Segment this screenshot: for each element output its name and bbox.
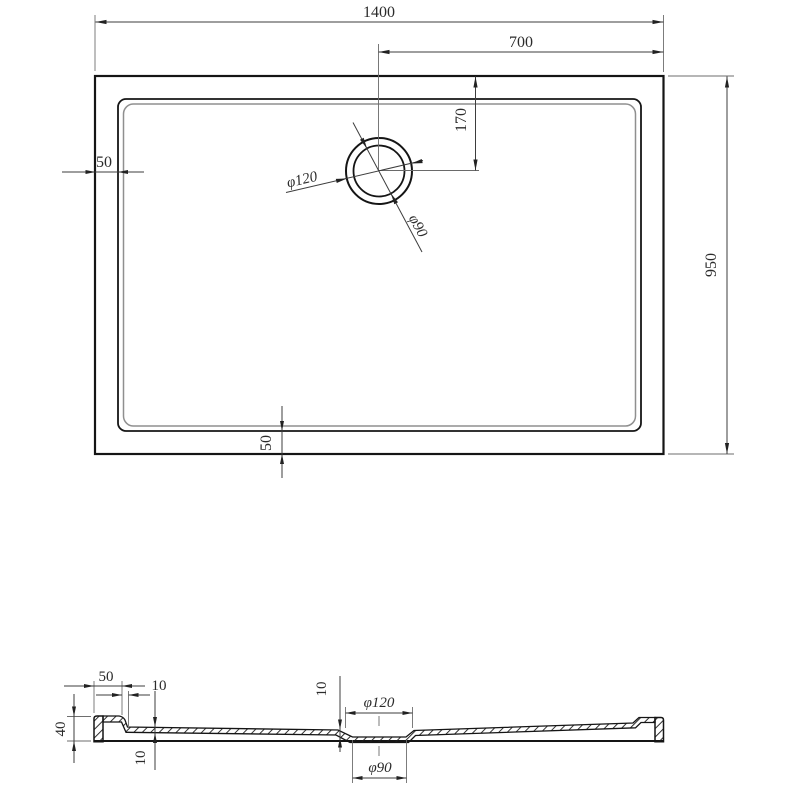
section-view: 50 10 40 10: [53, 669, 664, 783]
dim-label-10-recess: 10: [314, 682, 330, 697]
plan-view: 1400 700 170 950: [62, 4, 734, 478]
dim-section-rim: 50: [64, 669, 145, 715]
section-left-wall: [94, 716, 103, 742]
dim-label-170: 170: [453, 108, 470, 132]
dim-drain-offset: 170: [453, 77, 478, 171]
dim-label-d120-plan: φ120: [285, 169, 319, 192]
dim-label-950: 950: [703, 253, 720, 277]
dim-label-1400: 1400: [363, 4, 395, 21]
dim-label-50-section: 50: [99, 669, 114, 685]
dim-section-height: 40: [53, 694, 91, 763]
dim-drain-inner-diameter: φ90: [353, 123, 430, 253]
tray-outer-outline: [95, 76, 664, 454]
dim-label-d90-section: φ90: [368, 760, 392, 776]
dim-label-40: 40: [53, 722, 69, 737]
dim-label-10-thickness: 10: [133, 751, 149, 766]
dim-rim-bottom: 50: [258, 406, 284, 478]
dim-rim-left: 50: [62, 154, 144, 174]
dim-label-700: 700: [509, 34, 533, 51]
dim-label-10-step: 10: [152, 678, 167, 694]
drawing-canvas: 1400 700 170 950: [0, 0, 800, 800]
dim-label-50-left: 50: [96, 154, 112, 171]
technical-drawing: 1400 700 170 950: [0, 0, 800, 800]
dim-label-d120-section: φ120: [364, 695, 395, 711]
dim-label-d90-plan: φ90: [405, 212, 430, 241]
dim-plan-half-width: 700: [379, 34, 664, 54]
tray-inner-rim-2: [124, 104, 636, 426]
dim-section-drain-inner: φ90: [353, 740, 407, 783]
tray-inner-rim: [118, 99, 641, 431]
dim-plan-width: 1400: [95, 4, 664, 72]
section-right-wall: [655, 718, 664, 742]
dim-plan-depth: 950: [668, 76, 734, 454]
dim-label-50-bottom: 50: [258, 435, 275, 451]
